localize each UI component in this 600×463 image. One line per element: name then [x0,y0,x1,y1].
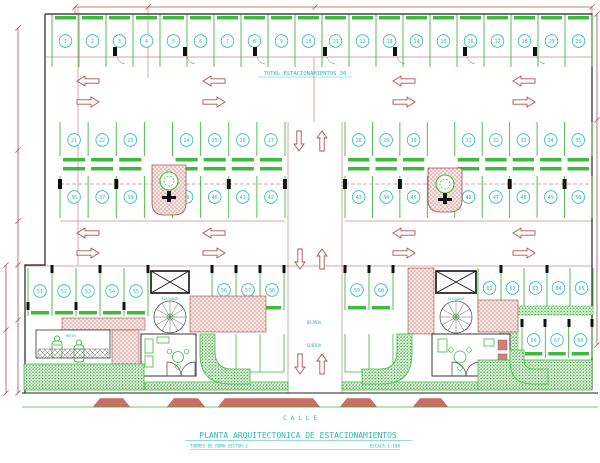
svg-text:13: 13 [386,39,392,45]
svg-text:46: 46 [465,195,471,201]
direction-arrow-icon [295,354,305,374]
svg-text:31: 31 [465,138,471,144]
svg-text:62: 62 [509,286,515,292]
direction-arrow-icon [393,76,415,86]
svg-text:55: 55 [133,289,139,295]
curb-ramp [93,399,130,408]
direction-arrow-icon [77,228,99,238]
direction-arrow-icon [203,76,225,86]
svg-text:14: 14 [413,39,419,45]
svg-text:3: 3 [118,39,121,45]
svg-text:20: 20 [575,39,581,45]
svg-text:54: 54 [109,289,115,295]
svg-text:50: 50 [575,195,581,201]
elevator-left-label: ELEVADOR [162,297,180,301]
direction-arrow-icon [203,248,225,258]
direction-arrow-icon [393,248,415,258]
svg-text:42: 42 [268,195,274,201]
svg-text:25: 25 [212,138,218,144]
svg-text:16: 16 [467,39,473,45]
svg-text:66: 66 [531,338,537,344]
svg-text:24: 24 [184,138,190,144]
svg-text:65: 65 [578,286,584,292]
tree-icon [436,175,454,193]
svg-text:9: 9 [280,39,283,45]
tree-islands [152,165,462,215]
svg-text:49: 49 [548,195,554,201]
svg-text:52: 52 [61,289,67,295]
direction-arrow-icon [77,97,99,107]
svg-text:29: 29 [383,138,389,144]
svg-text:7: 7 [226,39,229,45]
svg-text:67: 67 [554,338,560,344]
svg-text:43: 43 [356,195,362,201]
direction-arrow-icon [513,97,535,107]
svg-text:30: 30 [411,138,417,144]
direction-arrow-icon [77,248,99,258]
svg-text:32: 32 [493,138,499,144]
street-label: CALLE [283,415,321,422]
svg-text:23: 23 [127,138,133,144]
svg-text:10: 10 [305,39,311,45]
direction-arrow-icon [513,228,535,238]
svg-text:2: 2 [91,39,94,45]
svg-text:56: 56 [221,288,227,294]
svg-text:40: 40 [212,195,218,201]
svg-text:19: 19 [548,39,554,45]
curb-ramp [167,399,205,408]
svg-text:41: 41 [240,195,246,201]
svg-text:12: 12 [359,39,365,45]
svg-text:35: 35 [575,138,581,144]
direction-arrow-icon [317,131,327,151]
ramp-down-label: BAJADA [307,320,322,325]
svg-text:18: 18 [521,39,527,45]
svg-text:8: 8 [253,39,256,45]
svg-text:38: 38 [127,195,133,201]
direction-arrow-icon [203,97,225,107]
plan-geometry: 1234567891011121314151617181920212223242… [3,4,599,407]
svg-text:61: 61 [486,286,492,292]
elevator-right-label: ELEVADOR [448,297,466,301]
svg-text:27: 27 [268,138,274,144]
direction-arrow-icon [77,76,99,86]
floor-plan-canvas: 1234567891011121314151617181920212223242… [0,0,600,463]
curb-ramp [340,399,377,408]
svg-text:68: 68 [577,338,583,344]
direction-arrow-icon [513,248,535,258]
svg-text:21: 21 [71,138,77,144]
tree-icon [160,172,178,190]
svg-text:63: 63 [532,286,538,292]
total-stalls-label: TOTAL ESTACIONAMIENTOS 30 [264,71,347,77]
svg-text:47: 47 [493,195,499,201]
direction-arrow-icon [203,228,225,238]
svg-text:44: 44 [383,195,389,201]
motorcycle-area-label: MOTOS [66,334,77,338]
svg-text:48: 48 [520,195,526,201]
drawing-subtitle: TORRES DE ROMA SECTOR 1 [190,444,248,449]
scale-label: ESCALA 1:100 [370,444,401,449]
svg-text:4: 4 [145,39,148,45]
curb-ramp [218,399,320,408]
svg-text:15: 15 [440,39,446,45]
drawing-title: PLANTA ARQUITECTONICA DE ESTACIONAMIENTO… [199,431,397,440]
svg-text:64: 64 [555,286,561,292]
direction-arrow-icon [317,354,327,374]
svg-text:57: 57 [245,288,251,294]
svg-text:6: 6 [199,39,202,45]
svg-text:5: 5 [172,39,175,45]
svg-text:51: 51 [37,289,43,295]
svg-text:60: 60 [378,288,384,294]
svg-text:1: 1 [64,39,67,45]
direction-arrow-icon [294,131,304,151]
ramp-up-label: SUBIDA [307,343,322,348]
svg-text:22: 22 [99,138,105,144]
direction-arrow-icon [513,76,535,86]
svg-text:45: 45 [411,195,417,201]
svg-text:28: 28 [356,138,362,144]
svg-text:59: 59 [354,288,360,294]
svg-text:37: 37 [99,195,105,201]
direction-arrow-icon [393,97,415,107]
curb-ramp [413,399,448,408]
svg-text:33: 33 [520,138,526,144]
svg-text:58: 58 [269,288,275,294]
svg-text:26: 26 [240,138,246,144]
svg-text:34: 34 [548,138,554,144]
svg-text:53: 53 [85,289,91,295]
svg-text:36: 36 [71,195,77,201]
direction-arrow-icon [393,228,415,238]
svg-text:17: 17 [494,39,500,45]
lobby-left [36,271,266,376]
parking-floor-plan: 1234567891011121314151617181920212223242… [0,0,600,463]
street-edge [22,399,598,408]
svg-text:11: 11 [332,39,338,45]
